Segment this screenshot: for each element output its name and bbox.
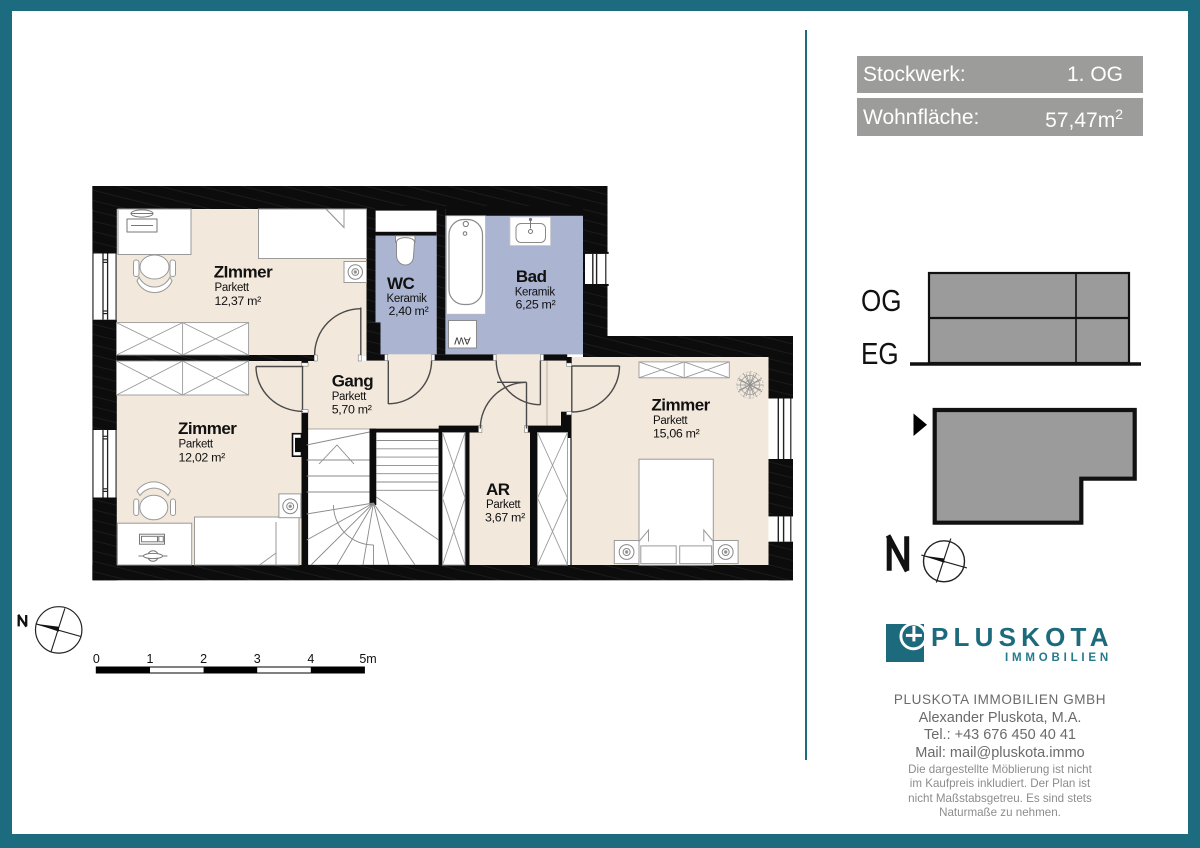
svg-text:Parkett: Parkett <box>486 499 521 511</box>
svg-text:Parkett: Parkett <box>653 415 688 427</box>
svg-text:1: 1 <box>147 652 154 666</box>
svg-text:Parkett: Parkett <box>179 439 214 451</box>
svg-text:12,02 m²: 12,02 m² <box>179 451 226 465</box>
svg-text:5m: 5m <box>359 652 376 666</box>
svg-text:4: 4 <box>307 652 314 666</box>
svg-text:3,67 m²: 3,67 m² <box>485 511 525 525</box>
svg-text:0: 0 <box>93 652 100 666</box>
svg-text:Zimmer: Zimmer <box>178 419 237 438</box>
svg-text:Parkett: Parkett <box>332 391 367 403</box>
svg-text:AW: AW <box>454 334 471 346</box>
svg-text:3: 3 <box>254 652 261 666</box>
svg-text:15,06 m²: 15,06 m² <box>653 427 700 441</box>
svg-text:Zimmer: Zimmer <box>651 396 710 415</box>
svg-text:Gang: Gang <box>332 372 374 391</box>
svg-text:5,70 m²: 5,70 m² <box>332 403 372 417</box>
svg-text:OG: OG <box>861 284 901 319</box>
svg-text:WC: WC <box>387 274 415 293</box>
svg-text:12,37 m²: 12,37 m² <box>215 294 262 308</box>
svg-text:EG: EG <box>861 337 899 372</box>
svg-text:6,25 m²: 6,25 m² <box>516 298 556 312</box>
svg-text:2,40 m²: 2,40 m² <box>389 304 429 318</box>
svg-text:ZImmer: ZImmer <box>214 263 273 282</box>
svg-text:Parkett: Parkett <box>215 282 250 294</box>
svg-text:Bad: Bad <box>516 267 547 286</box>
svg-text:AR: AR <box>486 480 510 499</box>
svg-text:2: 2 <box>200 652 207 666</box>
